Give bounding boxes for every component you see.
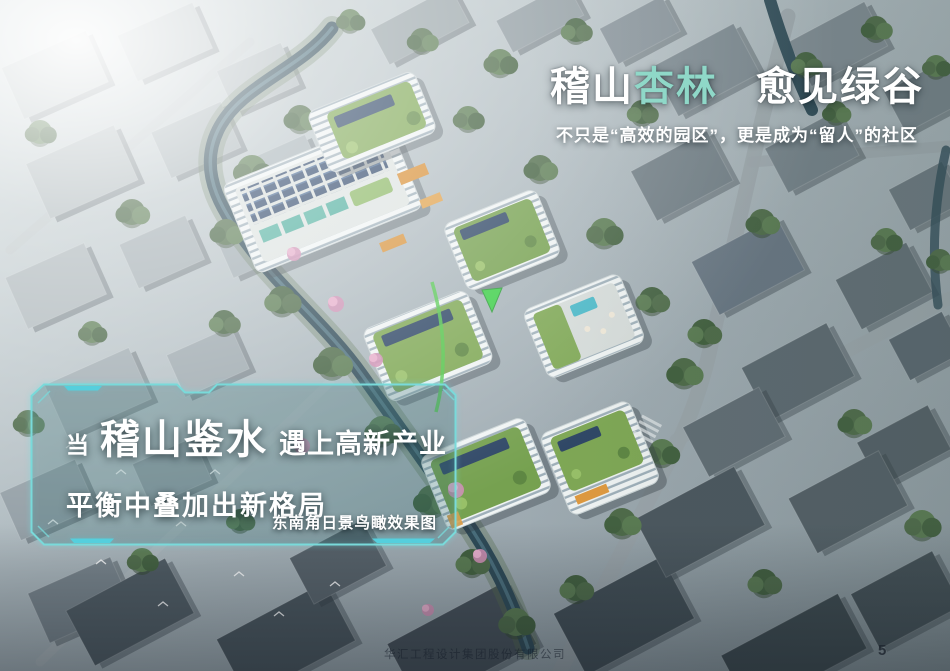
callout-tail: 遇上高新产业 (279, 422, 447, 461)
callout-emphasis: 稽山鉴水 (100, 407, 268, 465)
slide-header: 稽山杏林愈见绿谷 不只是“高效的园区”，更是成为“留人”的社区 (550, 54, 924, 146)
callout-box: 当 稽山鉴水 遇上高新产业 平衡中叠加出新格局 东南角日景鸟瞰效果图 (30, 383, 457, 546)
company-watermark: 华汇工程设计集团股份有限公司 (384, 646, 566, 662)
callout-line1: 当 稽山鉴水 遇上高新产业 (66, 407, 437, 465)
page-number: 5 (878, 642, 886, 659)
view-caption: 东南角日景鸟瞰效果图 (272, 511, 437, 533)
presentation-slide: 稽山杏林愈见绿谷 不只是“高效的园区”，更是成为“留人”的社区 当 稽山鉴水 遇… (0, 0, 950, 671)
title-prefix: 稽山 (550, 65, 634, 109)
callout-lead: 当 (66, 426, 89, 460)
title-accent: 杏林 (634, 65, 718, 109)
title-suffix: 愈见绿谷 (756, 65, 924, 109)
page-title: 稽山杏林愈见绿谷 (550, 54, 924, 112)
page-subtitle: 不只是“高效的园区”，更是成为“留人”的社区 (550, 121, 924, 146)
callout-content: 当 稽山鉴水 遇上高新产业 平衡中叠加出新格局 东南角日景鸟瞰效果图 (30, 383, 457, 546)
